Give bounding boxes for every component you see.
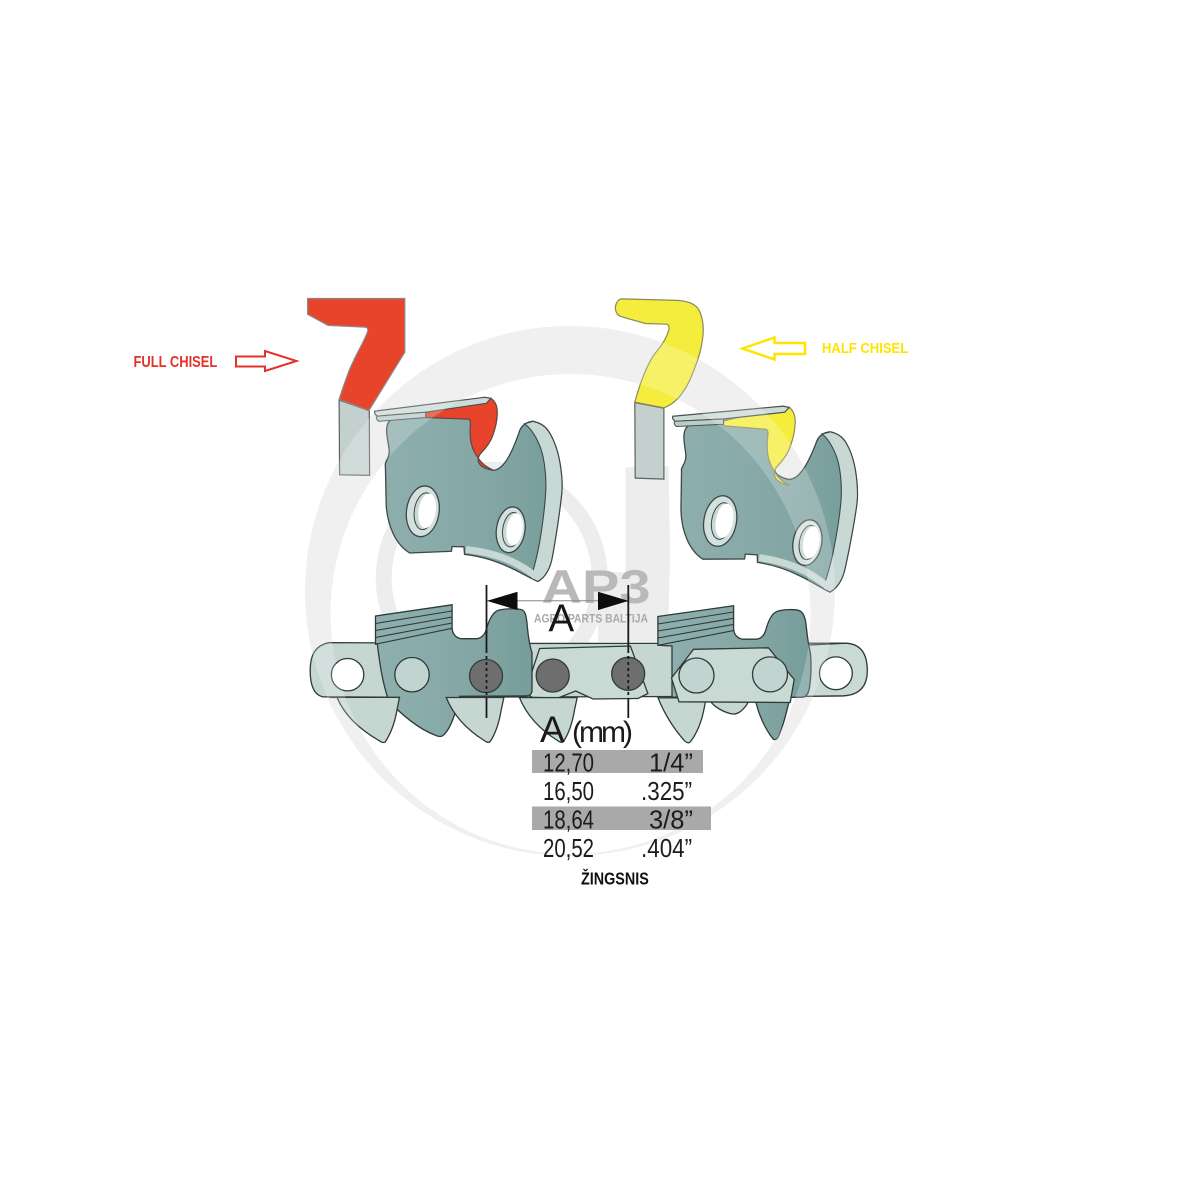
svg-text:ŽINGSNIS: ŽINGSNIS [581,868,649,889]
svg-text:A: A [549,598,575,641]
svg-text:FULL CHISEL: FULL CHISEL [134,354,218,371]
svg-text:1/4”: 1/4” [649,750,693,778]
svg-text:20,52: 20,52 [543,834,594,863]
svg-text:16,50: 16,50 [543,777,594,806]
svg-text:(mm): (mm) [572,716,633,749]
svg-text:18,64: 18,64 [543,805,594,834]
svg-text:.404”: .404” [641,835,692,864]
svg-text:3/8”: 3/8” [649,806,693,834]
svg-text:.325”: .325” [641,778,692,807]
svg-text:A: A [540,709,565,750]
svg-text:12,70: 12,70 [543,748,594,777]
svg-text:HALF CHISEL: HALF CHISEL [822,340,908,356]
